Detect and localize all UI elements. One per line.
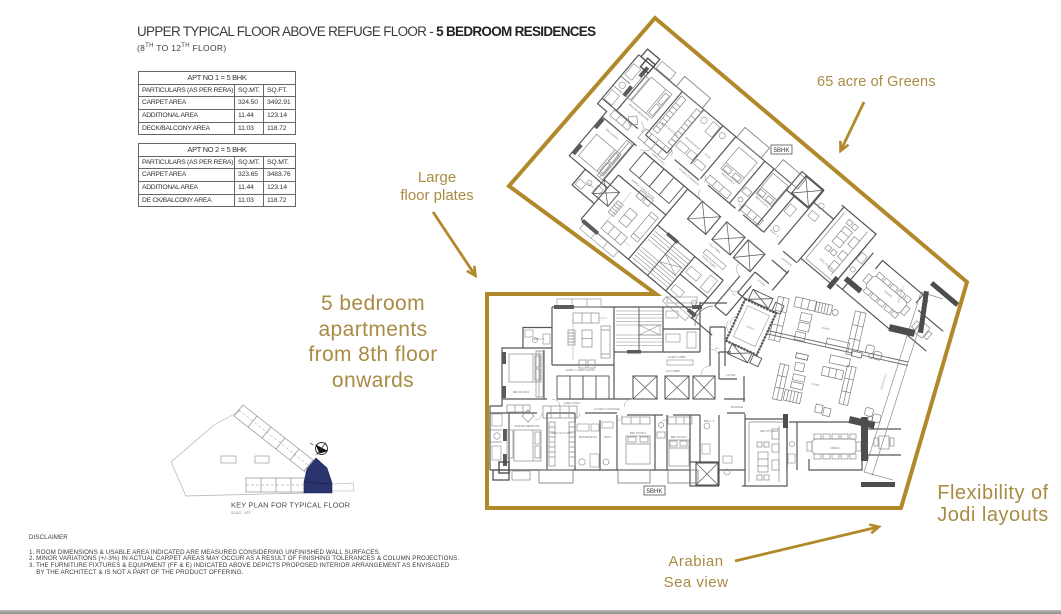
svg-text:LIVING: LIVING xyxy=(821,325,830,331)
svg-text:5BHK: 5BHK xyxy=(774,148,790,154)
svg-text:DECK EFFECT: DECK EFFECT xyxy=(880,372,888,390)
svg-text:5BHK: 5BHK xyxy=(647,489,663,495)
svg-text:KEY PLAN FOR TYPICAL FLOOR: KEY PLAN FOR TYPICAL FLOOR xyxy=(231,501,351,510)
svg-text:LIVING: LIVING xyxy=(811,381,820,387)
svg-text:SCALE - NTS: SCALE - NTS xyxy=(231,511,251,515)
